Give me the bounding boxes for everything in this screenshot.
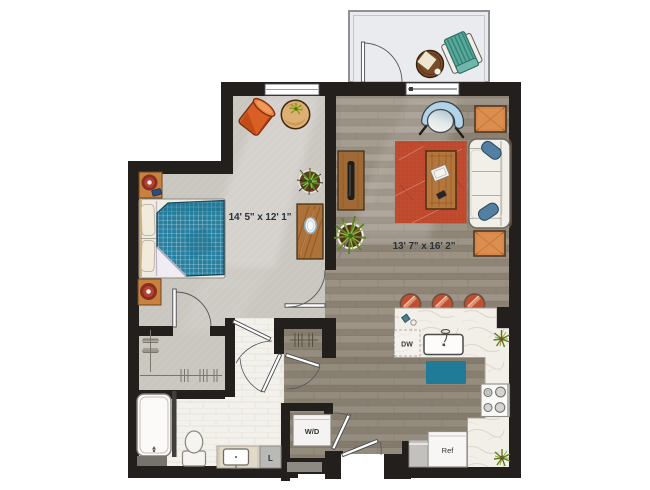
svg-text:DW: DW xyxy=(401,342,413,349)
svg-text:L: L xyxy=(268,454,273,463)
svg-text:14' 5" x 12' 1": 14' 5" x 12' 1" xyxy=(229,212,292,223)
svg-text:Ref: Ref xyxy=(442,446,455,455)
svg-text:13' 7" x 16' 2": 13' 7" x 16' 2" xyxy=(393,241,456,252)
svg-text:W/D: W/D xyxy=(305,427,320,436)
